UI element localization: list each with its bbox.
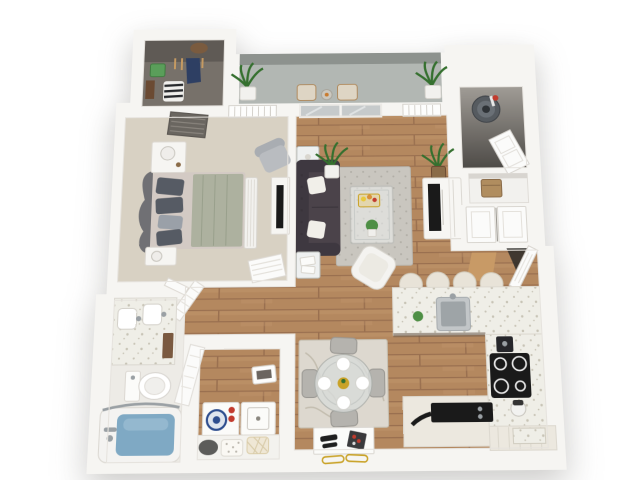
- coffee-table: [350, 186, 393, 243]
- decor-tray: [347, 430, 367, 450]
- patio-chair-right: [338, 84, 358, 100]
- patio-table-decor: [325, 93, 329, 97]
- leaning-frame: [252, 365, 277, 385]
- side-table-bottom: [296, 252, 320, 278]
- table-lamp-2: [151, 251, 162, 261]
- plate: [356, 376, 370, 390]
- sink-right: [143, 304, 163, 325]
- bedroom-tv: [276, 185, 283, 228]
- bathtub: [98, 403, 182, 462]
- sofa-pillow-top: [307, 176, 327, 195]
- tv-console: [423, 178, 463, 239]
- walk-in-closet: [142, 40, 225, 107]
- sink-left: [117, 308, 137, 329]
- foot-bench: [244, 178, 257, 249]
- closet-louvered-door: [167, 112, 208, 138]
- wood-ledge: [162, 333, 173, 358]
- plate: [336, 357, 350, 371]
- perspective-stage: [0, 0, 640, 480]
- utility-closet: [460, 87, 530, 175]
- bedroom-window: [229, 105, 277, 118]
- dryer: [241, 402, 276, 435]
- tub-faucet: [104, 427, 117, 431]
- dotted-basket: [221, 439, 243, 456]
- storage-niche: [469, 173, 529, 203]
- pillows: [153, 177, 185, 247]
- bed: [137, 170, 258, 254]
- cooktop: [489, 353, 531, 398]
- coffee-maker: [496, 336, 514, 352]
- patio-chair-left: [297, 85, 316, 101]
- diamond-basket: [247, 437, 269, 454]
- shoe-shelf: [145, 80, 155, 99]
- hanging-garment: [185, 58, 201, 84]
- striped-basket: [163, 81, 184, 102]
- plate: [337, 396, 351, 410]
- storage-box: [481, 179, 502, 197]
- television: [428, 184, 442, 231]
- living-room-window: [403, 104, 441, 116]
- entry-closet: [460, 204, 533, 244]
- green-storage-box: [150, 64, 165, 77]
- nightstand-top: [151, 142, 186, 173]
- toilet: [124, 371, 171, 401]
- floor-plan-canvas: [0, 0, 640, 480]
- plate: [317, 376, 331, 390]
- balcony: [231, 52, 448, 103]
- sofa-pillow-bottom: [306, 220, 326, 239]
- double-vanity: [111, 298, 177, 365]
- nightstand-bottom: [145, 247, 177, 265]
- floor-plan-render: [0, 12, 640, 480]
- kitchen-sink: [436, 293, 471, 330]
- dining-table: [315, 354, 373, 412]
- table-lamp: [161, 147, 176, 160]
- plan-3d-wrapper: [0, 12, 640, 480]
- washer: [202, 402, 239, 437]
- duvet: [191, 174, 244, 247]
